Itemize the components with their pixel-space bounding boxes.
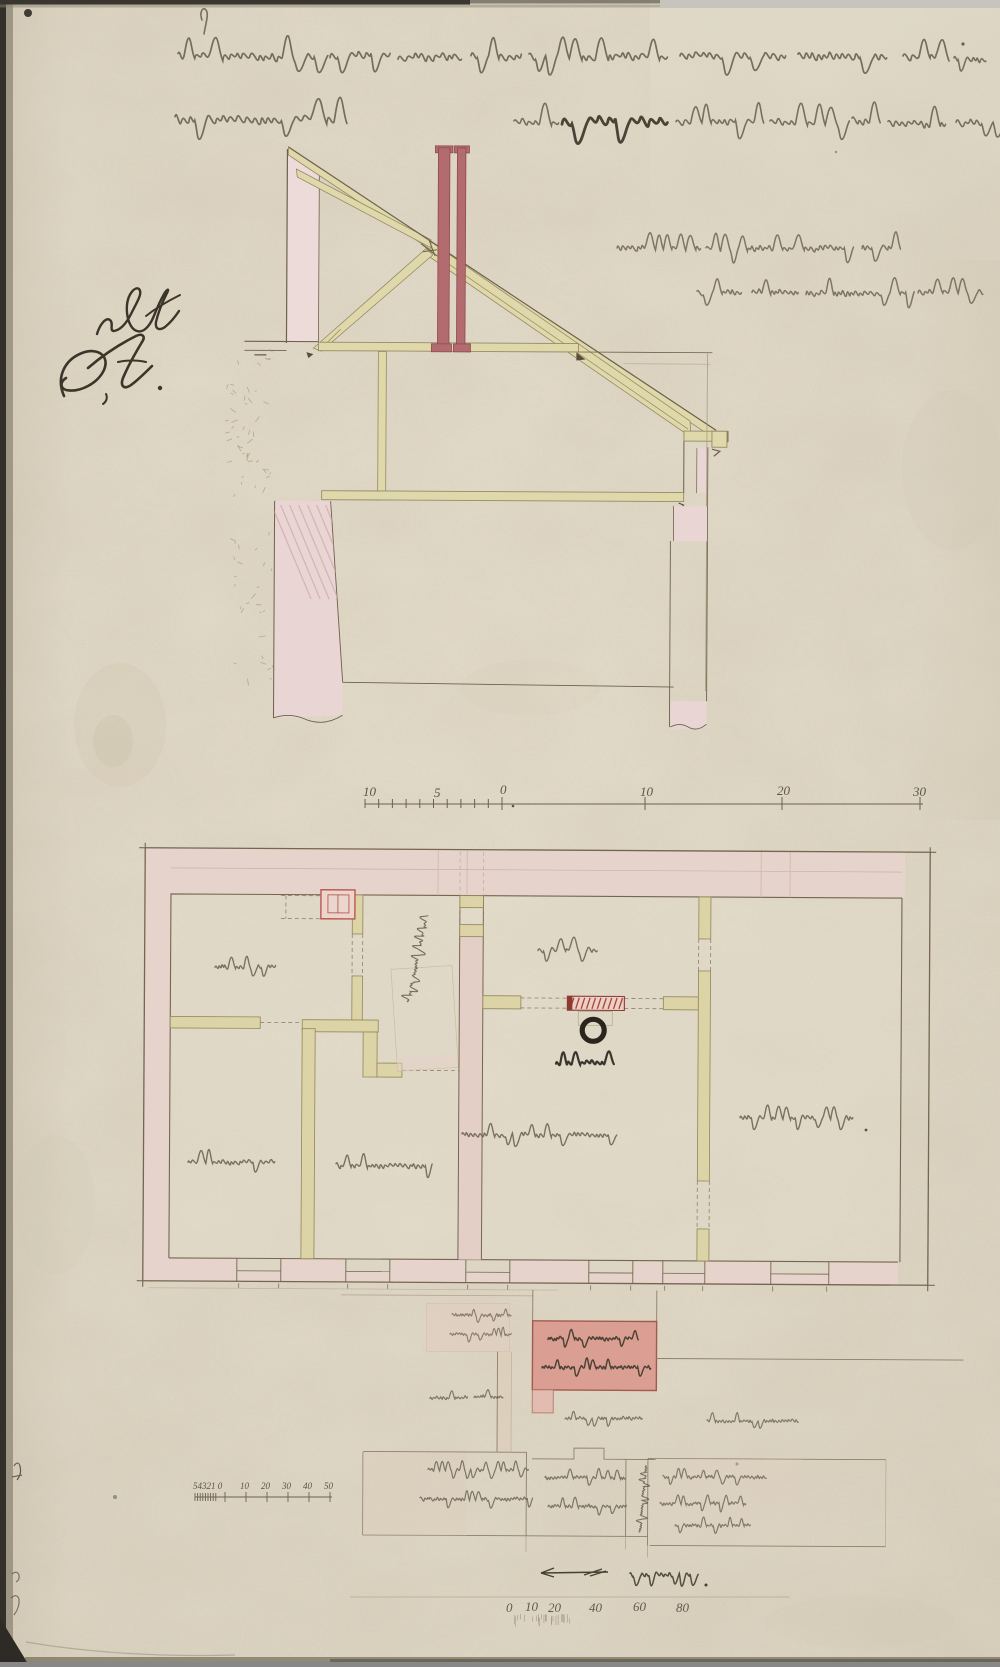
svg-text:20: 20 xyxy=(261,1481,271,1491)
svg-text:10: 10 xyxy=(525,1599,539,1614)
svg-text:10: 10 xyxy=(363,784,377,799)
svg-text:30: 30 xyxy=(912,784,927,799)
svg-text:10: 10 xyxy=(640,784,654,799)
svg-text:0: 0 xyxy=(500,782,507,797)
svg-text:60: 60 xyxy=(633,1599,647,1614)
svg-text:10: 10 xyxy=(240,1481,250,1491)
svg-text:0: 0 xyxy=(506,1600,513,1615)
svg-text:80: 80 xyxy=(676,1600,690,1615)
svg-text:50: 50 xyxy=(324,1481,334,1491)
svg-text:30: 30 xyxy=(281,1481,292,1491)
svg-text:40: 40 xyxy=(589,1600,603,1615)
svg-text:5: 5 xyxy=(434,785,441,800)
svg-text:20: 20 xyxy=(777,783,791,798)
svg-text:40: 40 xyxy=(303,1481,313,1491)
svg-text:20: 20 xyxy=(548,1600,562,1615)
svg-text:54321 0: 54321 0 xyxy=(193,1481,223,1491)
